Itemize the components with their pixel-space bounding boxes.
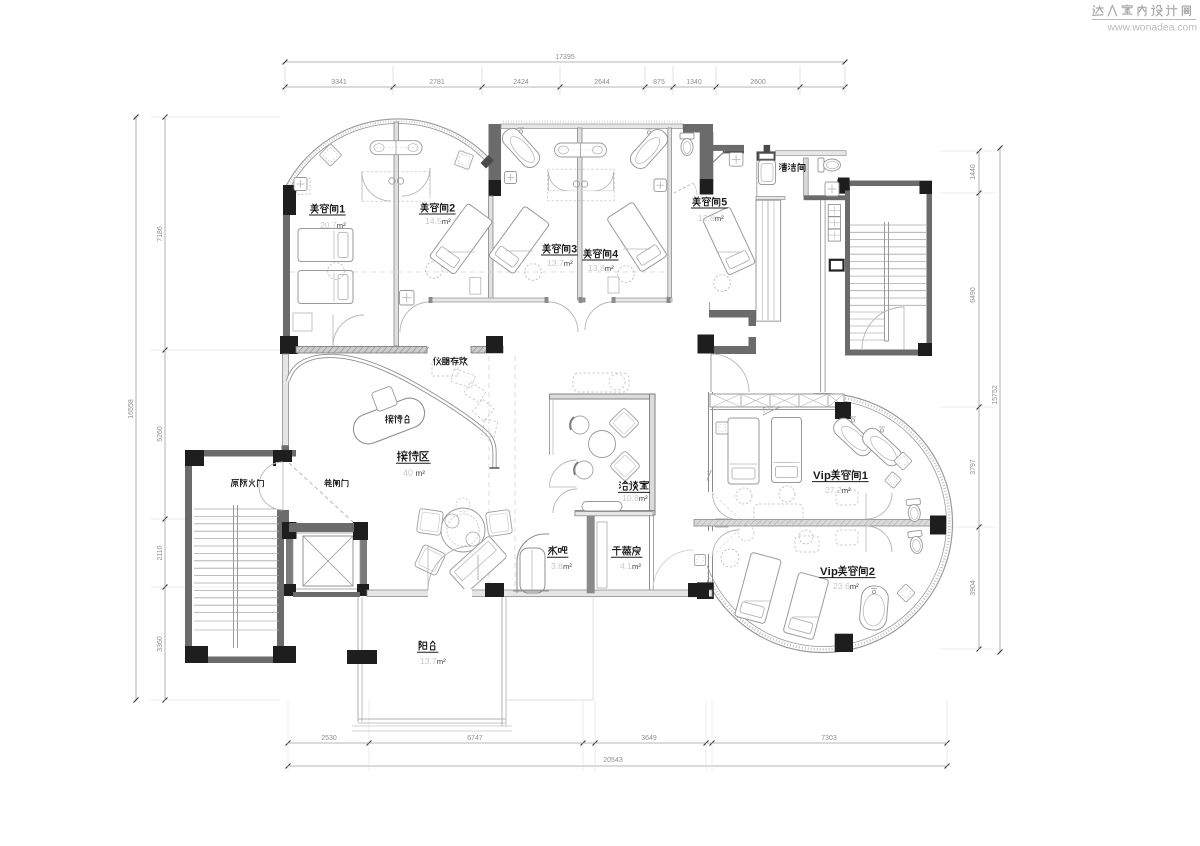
svg-text:7186: 7186 [157,226,164,242]
svg-text:875: 875 [653,79,665,86]
svg-text:17395: 17395 [555,54,575,61]
svg-text:3797: 3797 [970,459,977,475]
svg-text:3360: 3360 [157,636,164,652]
svg-text:27.2m²: 27.2m² [825,485,851,495]
svg-text:5: 5 [721,197,727,209]
svg-text:p: p [824,470,831,482]
svg-text:2: 2 [869,566,875,578]
svg-text:16558: 16558 [128,399,135,419]
svg-text:12.8m²: 12.8m² [698,213,724,223]
svg-text:2781: 2781 [429,79,445,86]
svg-text:13.8m²: 13.8m² [588,263,614,273]
svg-text:2644: 2644 [594,79,610,86]
svg-text:15752: 15752 [992,385,999,405]
svg-text:1: 1 [339,204,345,216]
svg-text:2110: 2110 [157,545,164,560]
svg-text:2530: 2530 [321,735,337,742]
svg-text:2: 2 [449,203,455,215]
svg-text:13.7m²: 13.7m² [547,258,573,268]
svg-text:10.8m²: 10.8m² [622,493,648,503]
svg-text:14.5m²: 14.5m² [425,216,451,226]
svg-text:4.1m²: 4.1m² [620,561,641,571]
svg-text:3649: 3649 [641,735,657,742]
svg-text:1440: 1440 [970,164,977,180]
svg-text:4: 4 [612,249,618,261]
svg-text:40 m²: 40 m² [403,468,425,478]
svg-text:7303: 7303 [821,735,837,742]
svg-text:6490: 6490 [970,287,977,303]
svg-text:3: 3 [571,244,577,256]
svg-text:13.7m²: 13.7m² [420,656,446,666]
svg-text:20.7m²: 20.7m² [320,220,346,230]
svg-text:3341: 3341 [331,79,347,86]
svg-text:6747: 6747 [467,735,483,742]
svg-text:1340: 1340 [686,79,702,86]
svg-text:23.6m²: 23.6m² [833,581,859,591]
svg-text:www.wonadea.com: www.wonadea.com [1106,23,1197,34]
svg-text:20543: 20543 [603,757,623,764]
svg-text:5260: 5260 [157,426,164,442]
svg-text:1: 1 [862,470,868,482]
svg-text:p: p [831,566,838,578]
svg-text:2600: 2600 [750,79,766,86]
svg-text:3.8m²: 3.8m² [551,561,572,571]
svg-text:2424: 2424 [513,79,529,86]
svg-text:3904: 3904 [970,580,977,596]
